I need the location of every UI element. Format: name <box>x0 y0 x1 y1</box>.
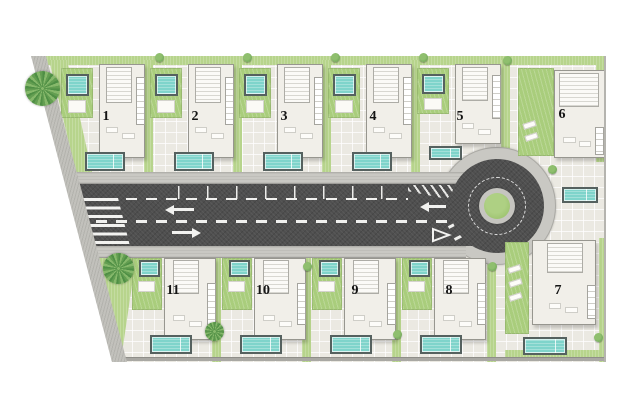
plot-number-label: 3 <box>273 110 295 124</box>
patio-furniture <box>563 137 576 143</box>
villa-footprint <box>455 64 501 144</box>
terrace-pad <box>68 100 86 113</box>
palm-tree-icon <box>25 71 60 106</box>
plot-unit: 2 <box>148 60 237 172</box>
side-wing <box>207 283 216 325</box>
patio-furniture <box>353 315 365 321</box>
terrace-pad <box>228 281 245 292</box>
shrub-icon <box>243 53 252 62</box>
left-arrow-head-icon <box>165 205 174 215</box>
side-wing <box>136 77 145 125</box>
roof-stair-terrace <box>195 67 221 103</box>
patio-furniture <box>478 129 491 135</box>
side-wing <box>403 77 412 125</box>
terrace-pad <box>424 98 442 110</box>
patio-furniture <box>173 315 185 321</box>
villa-footprint <box>532 240 596 325</box>
roof-stair-terrace <box>284 67 310 103</box>
main-pool <box>330 335 372 354</box>
palm-tree-icon <box>205 322 224 341</box>
main-pool <box>263 152 303 171</box>
plunge-pool <box>409 260 430 277</box>
side-wing <box>297 283 306 325</box>
patio-furniture <box>263 315 275 321</box>
plot-number-label: 10 <box>252 284 274 298</box>
side-wing <box>477 283 486 325</box>
main-pool <box>352 152 392 171</box>
roundabout-island-green <box>484 193 510 219</box>
plunge-pool <box>155 74 178 96</box>
shrub-icon <box>331 53 340 62</box>
right-arrow-head-icon <box>192 228 201 238</box>
main-pool <box>174 152 214 171</box>
exit-left-arrow-marking <box>428 205 446 208</box>
main-pool <box>85 152 125 171</box>
shrub-icon <box>303 262 312 271</box>
roof-stair-terrace <box>462 67 488 101</box>
patio-furniture <box>459 321 472 327</box>
plot-number-label: 8 <box>438 284 460 298</box>
plot-number-label: 4 <box>362 110 384 124</box>
plot-number-label: 5 <box>449 110 471 124</box>
patio-furniture <box>300 133 313 139</box>
villa-footprint <box>344 258 396 340</box>
roof-stair-terrace <box>373 67 399 103</box>
patio-furniture <box>284 127 296 133</box>
parking-bay-dashed-line <box>126 198 408 200</box>
main-pool <box>240 335 282 354</box>
plot-lawn <box>505 242 529 334</box>
main-pool <box>523 337 567 355</box>
plot-unit: 9 <box>308 258 398 362</box>
roof-stair-terrace <box>106 67 132 103</box>
patio-furniture <box>195 127 207 133</box>
plot-unit: 1 <box>59 60 148 172</box>
shrub-icon <box>503 56 512 65</box>
patio-furniture <box>369 321 382 327</box>
right-boundary-line <box>604 56 606 362</box>
patio-furniture <box>106 127 118 133</box>
terrace-pad <box>138 281 155 292</box>
villa-footprint <box>434 258 486 340</box>
plot6-pool <box>562 187 598 203</box>
terrace-pad <box>157 100 175 113</box>
shrub-icon <box>419 53 428 62</box>
plunge-pool <box>229 260 250 277</box>
patio-furniture <box>549 303 561 309</box>
shrub-icon <box>488 262 497 271</box>
side-wing <box>387 283 396 325</box>
plunge-pool <box>422 74 445 94</box>
hedge-divider <box>487 258 496 362</box>
shrub-icon <box>548 165 557 174</box>
shrub-icon <box>594 333 603 342</box>
terrace-pad <box>246 100 264 113</box>
plot-lawn <box>518 68 554 156</box>
shrub-icon <box>393 330 402 339</box>
yield-marking-icon <box>430 227 452 243</box>
plot-number-label: 11 <box>162 284 184 298</box>
side-wing <box>587 285 596 319</box>
plunge-pool <box>244 74 267 96</box>
plot-unit: 5 <box>415 60 504 172</box>
shrub-icon <box>155 53 164 62</box>
plot-unit: 7 <box>496 240 606 362</box>
plot-unit: 11 <box>128 258 218 362</box>
patio-furniture <box>565 307 578 313</box>
patio-furniture <box>373 127 385 133</box>
plunge-pool <box>319 260 340 277</box>
lane-divider-dashed-line <box>96 220 450 223</box>
plunge-pool <box>333 74 356 96</box>
right-arrow-marking <box>172 231 192 234</box>
plunge-pool <box>66 74 89 96</box>
terrace-pad <box>408 281 425 292</box>
bottom-boundary-line <box>110 357 606 361</box>
plunge-pool <box>139 260 160 277</box>
terrace-pad <box>335 100 353 113</box>
plot-number-label: 1 <box>95 110 117 124</box>
plot-unit: 3 <box>237 60 326 172</box>
plot-unit: 6 <box>513 60 606 172</box>
plot-number-label: 6 <box>551 108 573 122</box>
patio-furniture <box>122 133 135 139</box>
patio-furniture <box>211 133 224 139</box>
terrace-pad <box>318 281 335 292</box>
plot-unit: 8 <box>398 258 488 362</box>
plot-unit: 4 <box>326 60 415 172</box>
plot-number-label: 2 <box>184 110 206 124</box>
patio-furniture <box>189 321 202 327</box>
patio-furniture <box>389 133 402 139</box>
main-pool <box>150 335 192 354</box>
villa-footprint <box>254 258 306 340</box>
site-ground: 1 2 <box>0 0 620 415</box>
road-sidewalk-top <box>52 172 464 184</box>
exit-left-arrow-head-icon <box>420 202 429 212</box>
side-wing <box>492 75 501 119</box>
patio-furniture <box>443 315 455 321</box>
plot-number-label: 7 <box>547 284 569 298</box>
side-wing <box>314 77 323 125</box>
plot-unit: 10 <box>218 258 308 362</box>
left-arrow-marking <box>174 208 194 211</box>
plot-number-label: 9 <box>344 284 366 298</box>
side-wing <box>225 77 234 125</box>
patio-furniture <box>579 141 591 147</box>
site-plan: 1 2 <box>0 0 620 415</box>
main-pool <box>429 146 462 160</box>
side-wing <box>595 127 604 155</box>
roof-stair-terrace <box>559 73 599 107</box>
palm-tree-icon <box>103 253 134 284</box>
roof-stair-terrace <box>547 243 583 273</box>
main-pool <box>420 335 462 354</box>
patio-furniture <box>279 321 292 327</box>
